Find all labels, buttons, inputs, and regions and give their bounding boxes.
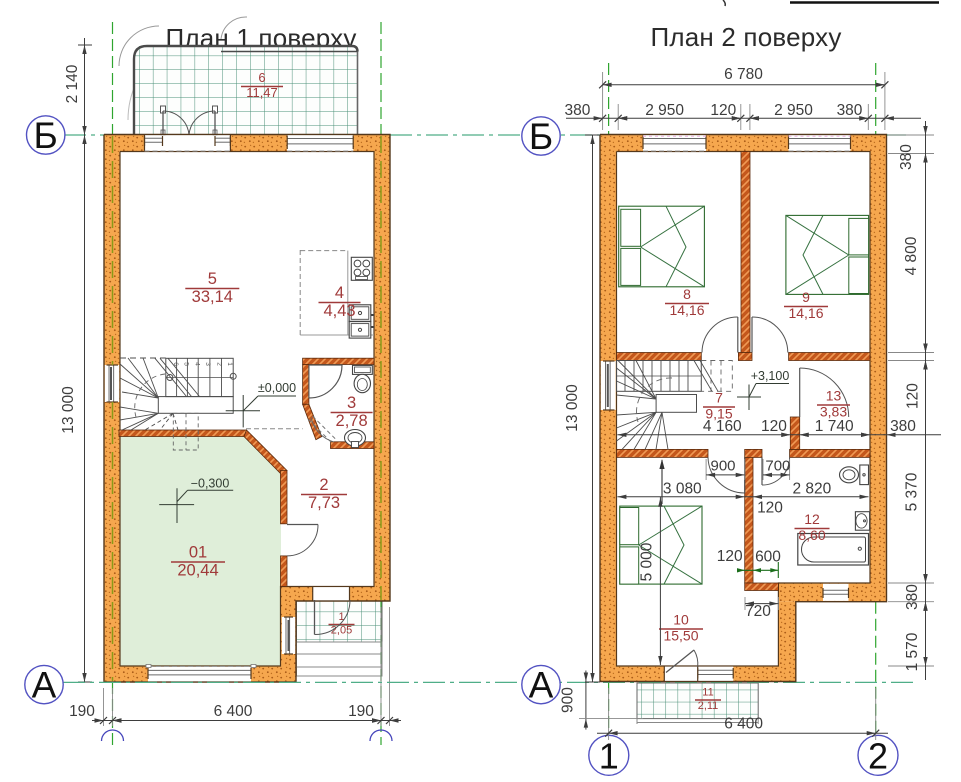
svg-text:13: 13 <box>826 388 842 404</box>
svg-text:380: 380 <box>890 418 916 435</box>
svg-text:Б: Б <box>529 116 553 157</box>
svg-text:33,14: 33,14 <box>192 288 233 306</box>
svg-text:900: 900 <box>710 458 735 475</box>
svg-text:14,16: 14,16 <box>669 302 704 318</box>
svg-text:11: 11 <box>702 687 713 699</box>
svg-text:700: 700 <box>765 458 790 475</box>
svg-text:−0,300: −0,300 <box>191 477 230 491</box>
svg-text:1: 1 <box>226 362 233 366</box>
svg-text:±0,000: ±0,000 <box>258 381 296 395</box>
svg-text:1 570: 1 570 <box>904 632 921 671</box>
svg-text:6 400: 6 400 <box>724 716 763 733</box>
svg-text:5: 5 <box>183 362 190 366</box>
svg-text:120: 120 <box>717 548 743 565</box>
svg-text:4,43: 4,43 <box>323 302 355 320</box>
svg-text:6: 6 <box>258 70 265 85</box>
svg-text:3 080: 3 080 <box>663 481 702 498</box>
svg-text:План 2 поверху: План 2 поверху <box>650 22 841 52</box>
svg-text:380: 380 <box>898 144 915 170</box>
svg-text:120: 120 <box>905 383 922 409</box>
svg-text:120: 120 <box>761 418 787 435</box>
svg-text:13 000: 13 000 <box>60 386 77 434</box>
svg-text:7,73: 7,73 <box>308 494 340 512</box>
svg-text:2,78: 2,78 <box>336 412 368 430</box>
svg-text:2 950: 2 950 <box>774 102 813 119</box>
svg-text:380: 380 <box>837 102 863 119</box>
svg-text:2: 2 <box>216 362 223 366</box>
svg-text:13 000: 13 000 <box>564 384 581 432</box>
svg-text:2 140: 2 140 <box>64 64 81 103</box>
svg-text:4: 4 <box>335 284 344 302</box>
svg-text:380: 380 <box>564 102 590 119</box>
svg-text:3: 3 <box>347 394 356 412</box>
svg-text:120: 120 <box>710 102 736 119</box>
svg-text:5 000: 5 000 <box>638 542 655 581</box>
svg-text:6 780: 6 780 <box>724 66 763 83</box>
svg-text:14,16: 14,16 <box>788 305 823 321</box>
svg-text:2 950: 2 950 <box>645 102 684 119</box>
svg-text:8: 8 <box>683 286 691 302</box>
svg-text:1: 1 <box>338 611 344 623</box>
svg-text:2,11: 2,11 <box>698 700 719 712</box>
svg-text:20,44: 20,44 <box>177 562 218 580</box>
svg-text:6 400: 6 400 <box>214 703 253 720</box>
svg-text:720: 720 <box>745 603 771 620</box>
svg-text:5: 5 <box>208 270 217 288</box>
svg-text:10: 10 <box>673 612 689 628</box>
svg-text:9: 9 <box>802 289 810 305</box>
svg-text:2,05: 2,05 <box>331 625 352 637</box>
svg-text:120: 120 <box>757 500 783 517</box>
svg-text:380: 380 <box>904 584 921 610</box>
svg-text:11,47: 11,47 <box>246 85 278 100</box>
svg-text:Б: Б <box>34 115 58 156</box>
svg-text:1: 1 <box>599 736 619 777</box>
svg-text:3: 3 <box>204 362 211 366</box>
svg-text:900: 900 <box>560 687 577 713</box>
svg-text:12: 12 <box>804 511 820 527</box>
svg-text:+3,100: +3,100 <box>751 369 790 383</box>
svg-text:15,50: 15,50 <box>663 627 698 643</box>
svg-text:5 370: 5 370 <box>904 472 921 511</box>
svg-text:4 800: 4 800 <box>903 236 920 275</box>
svg-text:01: 01 <box>189 544 207 562</box>
svg-text:А: А <box>529 665 554 706</box>
svg-text:190: 190 <box>348 703 374 720</box>
svg-text:8,60: 8,60 <box>798 527 825 543</box>
svg-text:4: 4 <box>194 362 201 366</box>
svg-text:4 160: 4 160 <box>703 418 742 435</box>
svg-text:2 820: 2 820 <box>793 481 832 498</box>
svg-text:А: А <box>32 665 57 706</box>
svg-text:190: 190 <box>69 703 95 720</box>
svg-text:1 740: 1 740 <box>815 418 854 435</box>
svg-text:2: 2 <box>868 736 888 777</box>
svg-text:2: 2 <box>319 476 328 494</box>
svg-text:600: 600 <box>755 549 781 566</box>
svg-text:7: 7 <box>715 390 723 406</box>
